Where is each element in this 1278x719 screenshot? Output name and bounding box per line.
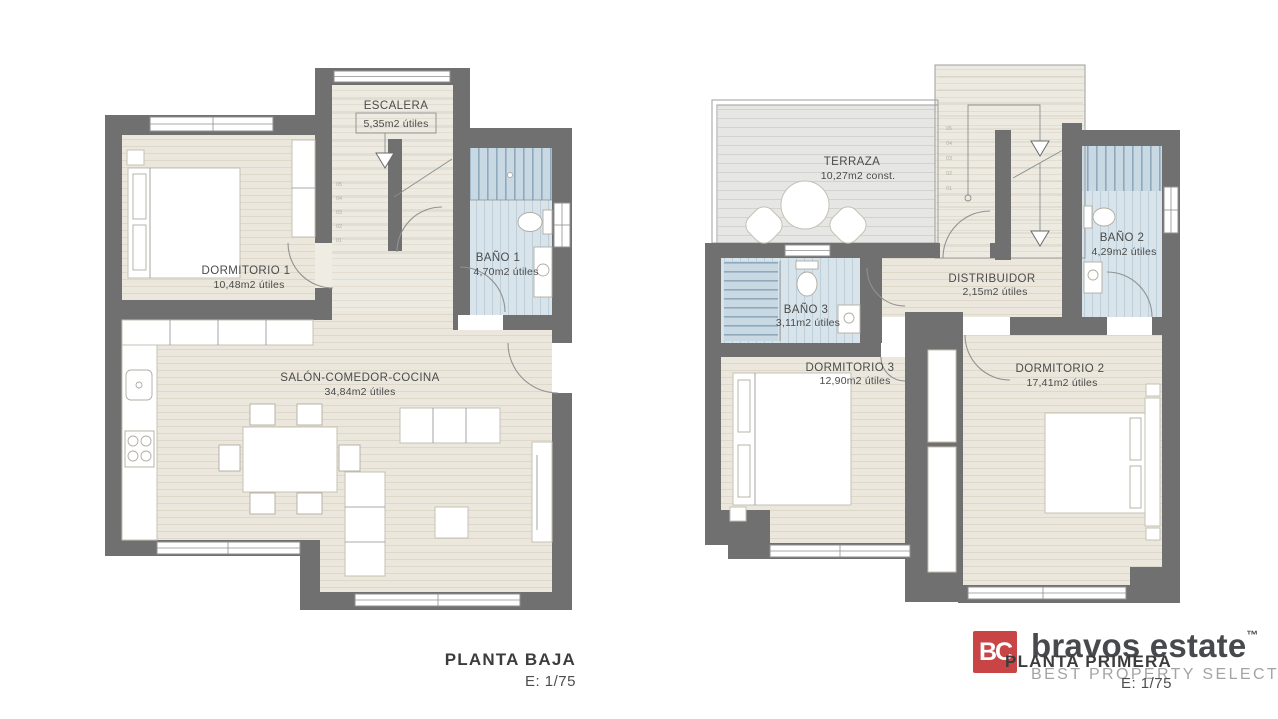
doorway-entrance bbox=[552, 343, 572, 393]
closet-door bbox=[928, 447, 956, 572]
window-escalera bbox=[334, 71, 450, 82]
step-number: 01 bbox=[336, 238, 342, 244]
dining-chair bbox=[250, 404, 275, 425]
planta-baja-plan: 05 04 03 02 01 bbox=[100, 55, 590, 620]
pillow bbox=[738, 380, 750, 432]
doorway-dormitorio-1 bbox=[315, 243, 332, 288]
area-dormitorio-3: 12,90m2 útiles bbox=[819, 375, 890, 387]
area-dormitorio-2: 17,41m2 útiles bbox=[1026, 377, 1097, 389]
label-bano-2: BAÑO 2 bbox=[1100, 231, 1145, 244]
label-salon: SALÓN-COMEDOR-COCINA bbox=[280, 371, 439, 384]
shower-drain bbox=[508, 173, 513, 178]
pillow bbox=[738, 445, 750, 497]
step-number: 05 bbox=[336, 182, 342, 188]
window-dormitorio-2 bbox=[968, 587, 1126, 599]
pillow bbox=[1130, 466, 1141, 508]
step-number: 03 bbox=[336, 210, 342, 216]
window-bano-1 bbox=[554, 203, 570, 247]
floorplan-sheet: 05 04 03 02 01 bbox=[0, 0, 1278, 719]
nightstand bbox=[730, 507, 746, 521]
kitchen-stove bbox=[125, 431, 154, 467]
planta-primera-plan: 05 04 03 02 01 bbox=[700, 55, 1190, 620]
trademark-symbol: ™ bbox=[1246, 628, 1258, 642]
toilet-bowl bbox=[797, 272, 817, 296]
furniture-dormitorio-3 bbox=[730, 373, 851, 521]
area-dormitorio-1: 10,48m2 útiles bbox=[213, 279, 284, 291]
nightstand bbox=[1146, 384, 1160, 396]
step-number: 05 bbox=[946, 126, 952, 132]
step-number: 02 bbox=[946, 171, 952, 177]
sofa-horizontal bbox=[400, 408, 500, 443]
step-number: 03 bbox=[946, 156, 952, 162]
label-escalera: ESCALERA bbox=[364, 100, 429, 112]
step-number: 02 bbox=[336, 224, 342, 230]
toilet-bowl bbox=[518, 213, 542, 232]
planta-baja-scale: E: 1/75 bbox=[400, 673, 576, 690]
label-terraza: TERRAZA bbox=[824, 156, 880, 168]
area-salon: 34,84m2 útiles bbox=[324, 386, 395, 398]
dining-table bbox=[243, 427, 337, 492]
headboard bbox=[1145, 398, 1160, 526]
pillow bbox=[133, 174, 146, 219]
planta-baja-title: PLANTA BAJA bbox=[400, 650, 576, 670]
pillow bbox=[1130, 418, 1141, 460]
pillow bbox=[133, 225, 146, 270]
dining-chair bbox=[250, 493, 275, 514]
area-bano-3: 3,11m2 útiles bbox=[776, 317, 840, 329]
area-escalera: 5,35m2 útiles bbox=[363, 118, 428, 130]
label-distribuidor: DISTRIBUIDOR bbox=[948, 273, 1035, 285]
dining-chair bbox=[339, 445, 360, 471]
planta-primera-title-block: PLANTA PRIMERA E: 1/75 bbox=[996, 652, 1172, 692]
label-dormitorio-1: DORMITORIO 1 bbox=[202, 265, 291, 277]
closet-door bbox=[928, 350, 956, 442]
nightstand bbox=[1146, 528, 1160, 540]
window-bano-2 bbox=[1164, 187, 1178, 233]
kitchen-counter-top bbox=[122, 320, 313, 345]
window-salon-bottom bbox=[355, 594, 520, 606]
armchair bbox=[435, 507, 468, 538]
nightstand bbox=[127, 150, 144, 165]
area-bano-2: 4,29m2 útiles bbox=[1091, 246, 1156, 258]
shower-bano-3 bbox=[724, 261, 778, 341]
label-dormitorio-2: DORMITORIO 2 bbox=[1016, 363, 1105, 375]
closets-dormitorio-2 bbox=[928, 350, 956, 572]
window-salon-left bbox=[157, 542, 300, 554]
step-number: 04 bbox=[336, 196, 342, 202]
toilet-tank bbox=[796, 261, 818, 269]
bed-dormitorio-3 bbox=[733, 373, 851, 505]
stair-core-wall bbox=[995, 130, 1011, 260]
shower-bano-2 bbox=[1082, 146, 1162, 191]
tv-unit bbox=[532, 442, 552, 542]
label-bano-1: BAÑO 1 bbox=[476, 251, 521, 264]
planta-primera-title: PLANTA PRIMERA bbox=[996, 652, 1172, 672]
toilet-bowl bbox=[1093, 208, 1115, 226]
area-bano-1: 4,70m2 útiles bbox=[473, 266, 538, 278]
window-bano-3 bbox=[785, 245, 830, 256]
planta-primera-scale: E: 1/75 bbox=[996, 675, 1172, 692]
terrace-table bbox=[781, 181, 829, 229]
area-terraza: 10,27m2 const. bbox=[821, 170, 896, 182]
label-bano-3: BAÑO 3 bbox=[784, 303, 829, 316]
label-dormitorio-3: DORMITORIO 3 bbox=[806, 362, 895, 374]
toilet-tank bbox=[1084, 206, 1092, 228]
step-number: 04 bbox=[946, 141, 952, 147]
window-dormitorio-3 bbox=[770, 545, 910, 557]
step-number: 01 bbox=[946, 186, 952, 192]
dining-chair bbox=[219, 445, 240, 471]
wardrobe bbox=[292, 140, 315, 237]
toilet-tank bbox=[543, 210, 552, 234]
area-distribuidor: 2,15m2 útiles bbox=[962, 286, 1027, 298]
sofa-vertical bbox=[345, 472, 385, 576]
dining-chair bbox=[297, 404, 322, 425]
window-dormitorio-1 bbox=[150, 117, 273, 131]
planta-baja-title-block: PLANTA BAJA E: 1/75 bbox=[400, 650, 576, 690]
dining-chair bbox=[297, 493, 322, 514]
